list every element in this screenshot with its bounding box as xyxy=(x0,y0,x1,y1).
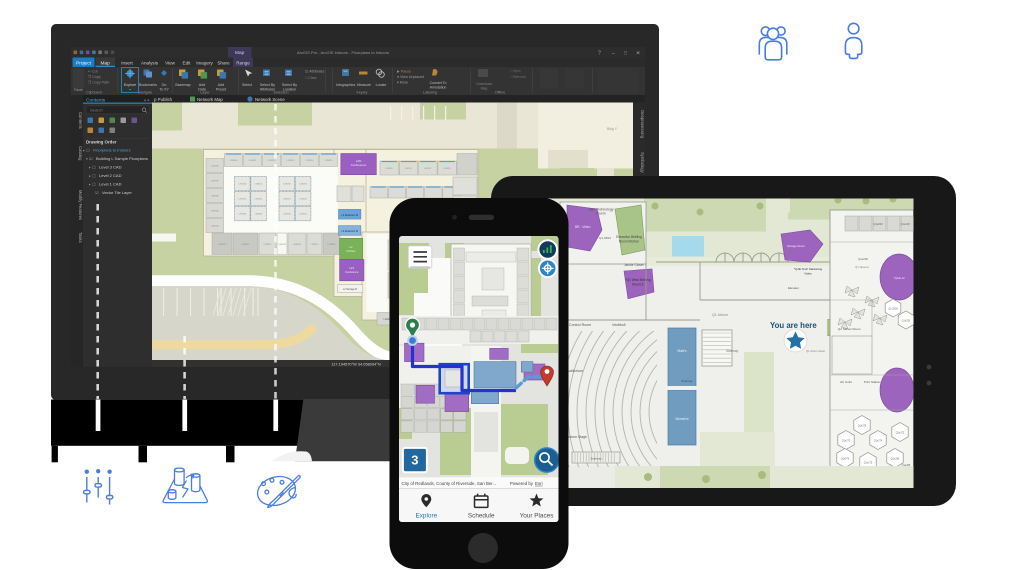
svg-text:Geoprocessing: Geoprocessing xyxy=(640,110,645,139)
svg-text:▸: ▸ xyxy=(89,174,91,178)
svg-text:Preset: Preset xyxy=(216,88,226,92)
svg-text:L2W234: L2W234 xyxy=(306,160,315,162)
svg-text:□ Remove: □ Remove xyxy=(510,75,526,79)
svg-text:Floorplans to Indoors: Floorplans to Indoors xyxy=(93,148,131,153)
svg-text:Video: Video xyxy=(804,272,812,276)
svg-text:Conference: Conference xyxy=(351,163,367,167)
svg-text:Imagery: Imagery xyxy=(196,60,213,65)
svg-text:Level 1 CAD: Level 1 CAD xyxy=(99,182,122,187)
svg-text:L2W037: L2W037 xyxy=(211,181,220,183)
svg-text:Esri: Esri xyxy=(535,481,543,486)
svg-text:Kitchen: Kitchen xyxy=(347,249,356,253)
svg-text:L2W070: L2W070 xyxy=(218,244,227,246)
svg-text:Convert To: Convert To xyxy=(430,81,447,85)
svg-text:Offline: Offline xyxy=(495,90,506,94)
svg-text:Stairway: Stairway xyxy=(590,457,602,461)
svg-text:Explore: Explore xyxy=(415,513,437,520)
svg-text:● View Unplaced: ● View Unplaced xyxy=(397,75,424,79)
svg-text:Women's: Women's xyxy=(675,417,689,421)
svg-text:*Q1E-AI: *Q1E-AI xyxy=(893,276,904,280)
svg-text:Conference: Conference xyxy=(345,270,359,274)
svg-text:L2 Storage B: L2 Storage B xyxy=(343,288,357,291)
svg-text:L2W075: L2W075 xyxy=(311,244,320,246)
svg-text:L2W076: L2W076 xyxy=(328,244,337,246)
svg-text:Powered by: Powered by xyxy=(510,481,534,486)
svg-text:L2W220: L2W220 xyxy=(283,214,292,216)
svg-text:Your Places: Your Places xyxy=(520,513,554,520)
svg-text:Q1e118: Q1e118 xyxy=(900,222,910,226)
svg-text:Q1 Server Room: Q1 Server Room xyxy=(838,327,861,331)
svg-text:Annotation: Annotation xyxy=(430,86,447,90)
svg-text:Elevator: Elevator xyxy=(788,286,799,290)
svg-text:Select By: Select By xyxy=(260,83,275,87)
svg-text:▾ More: ▾ More xyxy=(397,81,408,85)
svg-text:L2E232: L2E232 xyxy=(424,168,432,170)
svg-text:Room Kitchen: Room Kitchen xyxy=(619,240,639,244)
svg-text:Print Station: Print Station xyxy=(864,380,881,384)
svg-text:Schedule: Schedule xyxy=(468,513,495,520)
svg-text:L2E233: L2E233 xyxy=(443,168,451,170)
svg-text:–: – xyxy=(612,51,615,57)
svg-text:?: ? xyxy=(598,51,601,57)
svg-text:L2W072: L2W072 xyxy=(264,244,273,246)
svg-text:Room E: Room E xyxy=(632,283,644,287)
svg-text:Map: Map xyxy=(481,87,488,91)
svg-text:L2E231: L2E231 xyxy=(405,168,413,170)
svg-text:*Q1E Tech Marketing: *Q1E Tech Marketing xyxy=(794,267,823,271)
svg-text:◫ Attributes: ◫ Attributes xyxy=(305,70,325,74)
svg-text:☑: ☑ xyxy=(95,190,99,195)
svg-text:Analysis: Analysis xyxy=(141,60,159,65)
svg-text:You are here: You are here xyxy=(770,321,817,330)
svg-text:Share: Share xyxy=(217,60,230,65)
svg-text:L2W221: L2W221 xyxy=(255,214,264,216)
svg-text:Data: Data xyxy=(198,88,206,92)
svg-text:L2W232: L2W232 xyxy=(268,160,277,162)
svg-text:▢: ▢ xyxy=(92,182,96,187)
svg-text:L2W071: L2W071 xyxy=(242,244,251,246)
svg-text:Map: Map xyxy=(235,50,245,56)
svg-text:Network Scene: Network Scene xyxy=(255,97,285,102)
svg-text:□ Clear: □ Clear xyxy=(305,76,318,80)
svg-text:Q1e252: Q1e252 xyxy=(902,320,911,323)
svg-text:L2E230: L2E230 xyxy=(385,168,393,170)
svg-text:Clipboard: Clipboard xyxy=(86,90,102,94)
svg-text:Q1e280: Q1e280 xyxy=(891,457,900,460)
svg-text:Insert: Insert xyxy=(121,60,133,65)
svg-text:Executive Briefing: Executive Briefing xyxy=(616,235,642,239)
svg-text:▶ Pause: ▶ Pause xyxy=(397,70,411,74)
svg-text:ArcGIS Pro - ArcGIS Indoors -: ArcGIS Pro - ArcGIS Indoors - Floorplans… xyxy=(297,50,389,55)
svg-text:Edit: Edit xyxy=(183,60,192,65)
svg-text:*Q1 West Briefing: *Q1 West Briefing xyxy=(625,278,651,282)
svg-text:3: 3 xyxy=(411,453,418,468)
svg-text:L2W200: L2W200 xyxy=(283,184,292,186)
svg-text:▢: ▢ xyxy=(86,148,90,153)
svg-text:L2W201: L2W201 xyxy=(255,184,264,186)
svg-text:L2W231: L2W231 xyxy=(249,160,258,162)
svg-text:Contents: Contents xyxy=(78,112,83,129)
svg-text:Measure: Measure xyxy=(357,83,371,87)
svg-text:L2W034: L2W034 xyxy=(211,226,220,228)
svg-text:Range: Range xyxy=(236,60,250,65)
svg-text:Location: Location xyxy=(283,88,297,92)
svg-text:Labeling: Labeling xyxy=(423,90,437,94)
svg-text:☑: ☑ xyxy=(89,156,93,161)
svg-text:L2W200: L2W200 xyxy=(238,184,247,186)
svg-text:Q1e372: Q1e372 xyxy=(896,431,905,434)
svg-text:Q1e270: Q1e270 xyxy=(858,424,867,427)
svg-text:Level 2 CAD: Level 2 CAD xyxy=(99,173,122,178)
svg-text:Network Map: Network Map xyxy=(197,97,223,102)
svg-text:❐ Copy Path: ❐ Copy Path xyxy=(88,80,109,85)
svg-text:Contents: Contents xyxy=(86,97,106,103)
svg-text:L2W210: L2W210 xyxy=(238,199,247,201)
svg-text:Bldg Y: Bldg Y xyxy=(607,127,618,131)
svg-text:L2W035: L2W035 xyxy=(211,211,220,213)
svg-text:117.194570°W 34.058094°N: 117.194570°W 34.058094°N xyxy=(331,361,381,366)
svg-text:Q1 Atrium East: Q1 Atrium East xyxy=(806,349,825,353)
svg-text:Navigate: Navigate xyxy=(138,90,153,94)
svg-text:Catalog: Catalog xyxy=(78,146,83,161)
svg-text:Q1 Atrium: Q1 Atrium xyxy=(712,313,728,317)
svg-text:Map: Map xyxy=(101,60,111,66)
svg-text:L2W074: L2W074 xyxy=(293,244,302,246)
svg-text:To XY: To XY xyxy=(159,88,169,92)
svg-text:City of Redlands, County of Ri: City of Redlands, County of Riverside, S… xyxy=(402,481,497,486)
svg-text:L2W235: L2W235 xyxy=(325,160,334,162)
svg-text:▾: ▾ xyxy=(86,157,88,161)
svg-text:Storage Room: Storage Room xyxy=(787,244,806,248)
svg-text:Bookmarks: Bookmarks xyxy=(139,83,157,87)
svg-text:Drawing Order: Drawing Order xyxy=(86,140,117,145)
svg-text:Search: Search xyxy=(90,108,103,113)
svg-text:□ Sync: □ Sync xyxy=(510,69,521,73)
svg-text:BR - Video: BR - Video xyxy=(575,225,591,229)
svg-text:L2W201: L2W201 xyxy=(299,184,308,186)
svg-text:Explore: Explore xyxy=(124,83,136,87)
svg-text:L2 Restroom W: L2 Restroom W xyxy=(341,230,358,233)
svg-text:Janitor Closet: Janitor Closet xyxy=(624,263,644,267)
svg-text:L2W210: L2W210 xyxy=(283,199,292,201)
svg-text:L2W233: L2W233 xyxy=(287,160,296,162)
svg-text:L2W036: L2W036 xyxy=(211,196,220,198)
svg-text:▢: ▢ xyxy=(92,165,96,170)
svg-text:▸: ▸ xyxy=(89,183,91,187)
svg-text:L2W221: L2W221 xyxy=(299,214,308,216)
svg-text:Download: Download xyxy=(476,82,492,86)
svg-text:L2W073: L2W073 xyxy=(278,244,287,246)
svg-text:Tasks: Tasks xyxy=(78,232,83,243)
svg-text:Q1-2B22: Q1-2B22 xyxy=(599,236,611,240)
svg-text:Q1-2628: Q1-2628 xyxy=(888,308,898,311)
svg-text:L2S: L2S xyxy=(349,266,354,270)
svg-text:Q1e070: Q1e070 xyxy=(841,457,850,460)
svg-text:▸: ▸ xyxy=(89,166,91,170)
svg-text:Locate: Locate xyxy=(376,83,387,87)
svg-text:Q1 Spaces: Q1 Spaces xyxy=(855,265,869,269)
svg-text:✂ Cut: ✂ Cut xyxy=(88,70,98,74)
svg-text:AC Units: AC Units xyxy=(840,380,852,384)
svg-text:L2W211: L2W211 xyxy=(299,199,307,201)
svg-text:p Publish: p Publish xyxy=(154,97,173,102)
svg-text:Stairway: Stairway xyxy=(681,379,693,383)
svg-text:Select By: Select By xyxy=(282,83,297,87)
svg-text:Add: Add xyxy=(218,83,224,87)
svg-text:Building L Sample Floorplans: Building L Sample Floorplans xyxy=(96,156,148,161)
svg-text:Select: Select xyxy=(242,83,252,87)
svg-text:L2 Restroom M: L2 Restroom M xyxy=(342,214,358,217)
svg-text:L2W220: L2W220 xyxy=(238,214,247,216)
svg-text:❐ Copy: ❐ Copy xyxy=(88,74,101,79)
svg-text:L2W211: L2W211 xyxy=(255,199,263,201)
svg-text:Basemap: Basemap xyxy=(175,83,190,87)
svg-text:Q1e274: Q1e274 xyxy=(874,439,883,442)
svg-text:□: □ xyxy=(624,51,627,57)
svg-text:Stairway: Stairway xyxy=(726,349,739,353)
svg-text:Infographics: Infographics xyxy=(336,83,356,87)
svg-text:Q1e220: Q1e220 xyxy=(858,257,868,261)
svg-text:▢: ▢ xyxy=(92,173,96,178)
svg-text:Modify Features: Modify Features xyxy=(78,190,83,220)
svg-text:Room: Room xyxy=(596,212,605,216)
svg-text:Symbology: Symbology xyxy=(640,152,645,174)
svg-text:View: View xyxy=(165,60,176,65)
svg-text:Q1e020: Q1e020 xyxy=(873,222,883,226)
svg-text:Attributes: Attributes xyxy=(260,88,275,92)
svg-text:Vestibull: Vestibull xyxy=(612,323,626,327)
svg-text:Vector Tile Layer: Vector Tile Layer xyxy=(102,190,132,195)
svg-text:▾ ✕: ▾ ✕ xyxy=(144,98,150,102)
svg-text:Level 3 CAD: Level 3 CAD xyxy=(99,165,122,170)
svg-text:Q1e272: Q1e272 xyxy=(842,439,851,442)
svg-text:✕: ✕ xyxy=(636,51,640,57)
svg-text:L2W230: L2W230 xyxy=(230,160,239,162)
svg-text:Project: Project xyxy=(76,60,92,66)
svg-text:L2W038: L2W038 xyxy=(211,166,220,168)
svg-text:Control Room: Control Room xyxy=(569,323,591,327)
svg-text:Q1e175: Q1e175 xyxy=(864,461,873,464)
svg-text:Add: Add xyxy=(199,83,205,87)
svg-text:Go: Go xyxy=(162,83,167,87)
svg-text:Male's: Male's xyxy=(677,349,687,353)
svg-text:Inquiry: Inquiry xyxy=(356,90,367,94)
svg-text:Paste: Paste xyxy=(74,88,83,92)
